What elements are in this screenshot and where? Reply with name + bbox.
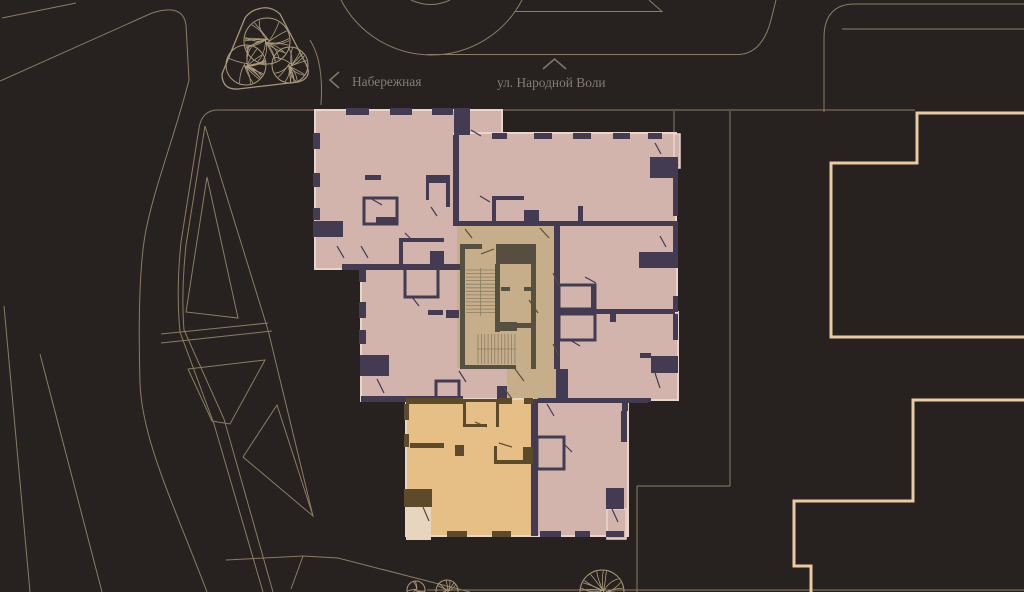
svg-text:Набережная: Набережная xyxy=(352,74,421,89)
svg-text:ул. Народной Воли: ул. Народной Воли xyxy=(497,75,606,90)
